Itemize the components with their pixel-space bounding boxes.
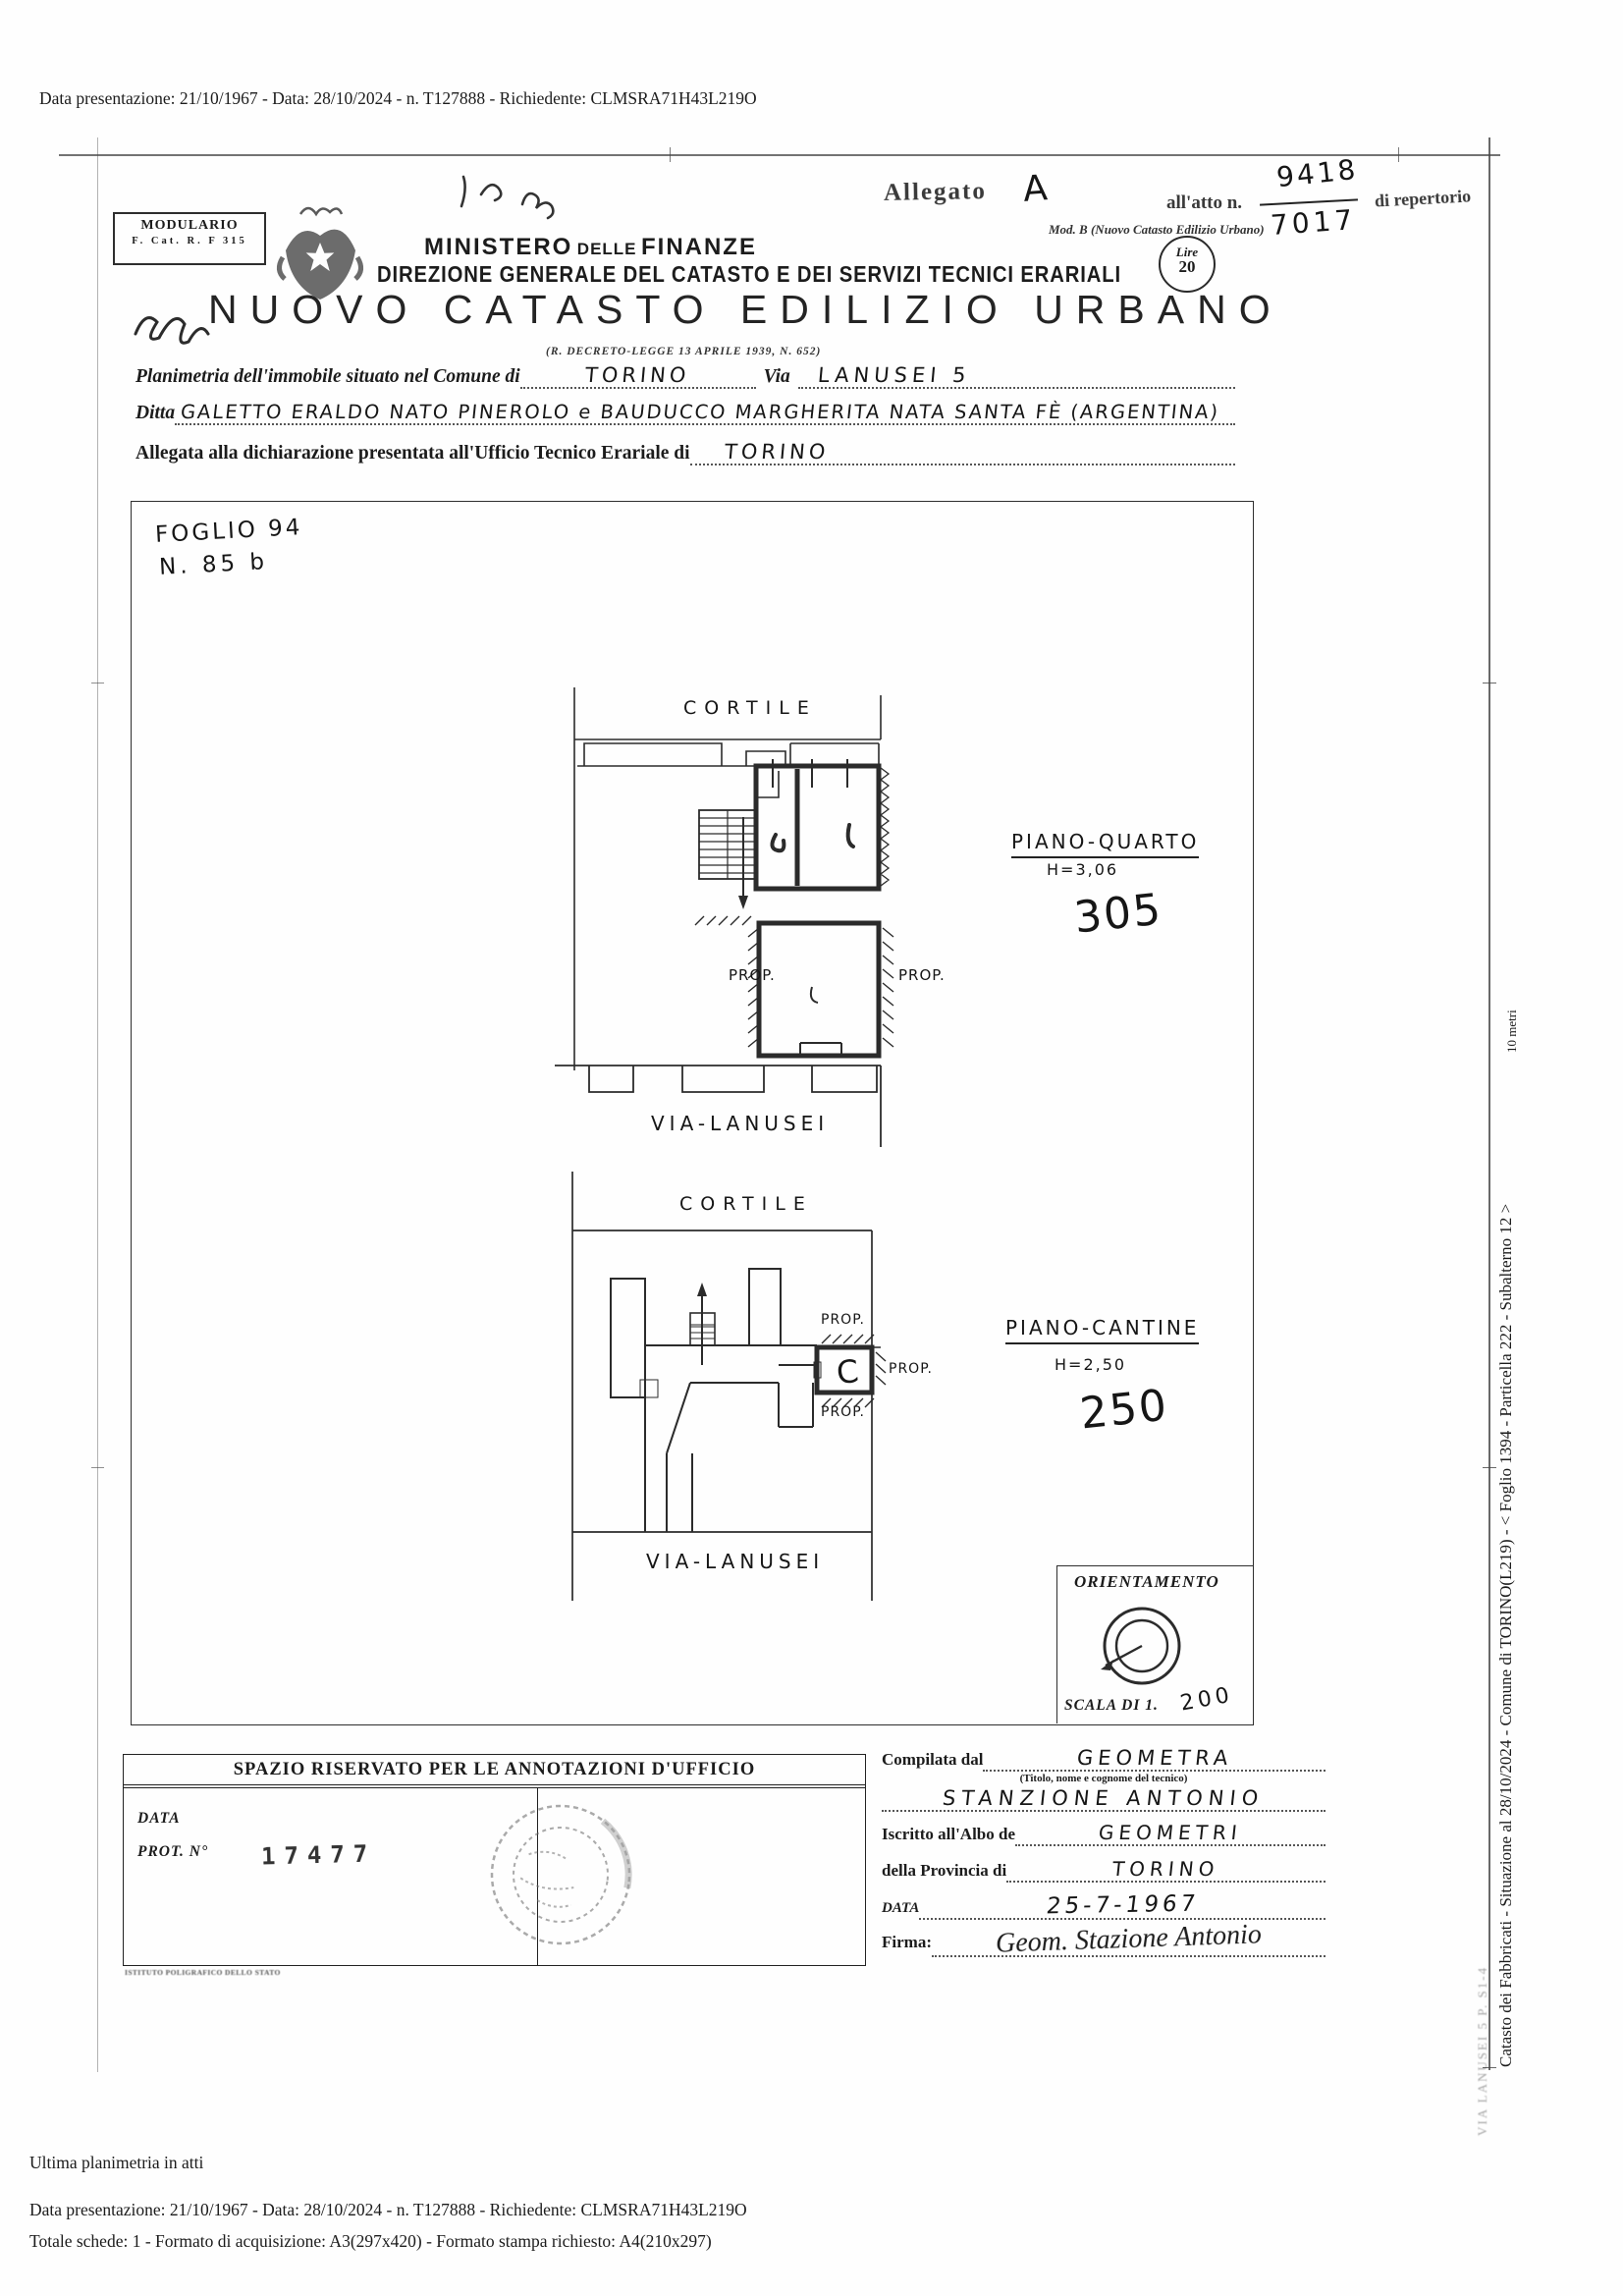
ditta-field: GALETTO ERALDO NATO PINEROLO e BAUDUCCO … <box>175 401 1235 425</box>
frame-left-line <box>97 137 98 2072</box>
titolo-note: (Titolo, nome e cognome del tecnico) <box>882 1773 1325 1784</box>
planimetria-row: Planimetria dell'immobile situato nel Co… <box>135 363 1235 389</box>
scalebar-meters-label: 10 metri <box>1504 1010 1520 1053</box>
cortile-label-2: CORTILE <box>679 1193 813 1215</box>
modulario-title: MODULARIO <box>115 218 264 234</box>
provincia-label: della Provincia di <box>882 1861 1006 1881</box>
comune-field: TORINO <box>520 363 756 389</box>
allegata-row: Allegata alla dichiarazione presentata a… <box>135 440 1235 465</box>
tick-top-2 <box>1398 147 1399 162</box>
frame-top-line <box>59 154 1500 156</box>
repertorio-stamp: di repertorio <box>1375 186 1472 211</box>
prop-left-label: PROP. <box>729 966 776 984</box>
modulario-code: F. Cat. R. F 315 <box>115 236 264 246</box>
cortile-label-1: CORTILE <box>683 697 817 719</box>
lire-20-seal: Lire 20 <box>1159 236 1216 293</box>
allegato-stamp: Allegato <box>884 178 987 207</box>
data-row: DATA 25-7-1967 <box>882 1892 1325 1920</box>
prot-number-stamp: 17477 <box>261 1839 377 1870</box>
decreto-subtitle: (R. DECRETO-LEGGE 13 APRILE 1939, N. 652… <box>546 346 821 357</box>
scanned-cadastral-document: Data presentazione: 21/10/1967 - Data: 2… <box>0 0 1623 2296</box>
prop-right-label: PROP. <box>898 966 946 984</box>
albo-value-handwritten: GEOMETRI <box>1098 1821 1243 1844</box>
firma-field: Geom. Stazione Antonio <box>932 1924 1325 1957</box>
round-office-stamp <box>437 1776 684 1974</box>
ufficio-field: TORINO <box>690 440 1235 465</box>
annotations-prot-label: PROT. N° <box>137 1843 208 1861</box>
orientamento-label: ORIENTAMENTO <box>1074 1572 1219 1592</box>
via-value-handwritten: LANUSEI 5 <box>817 363 972 387</box>
prop-top-label-2: PROP. <box>821 1312 865 1328</box>
firma-row: Firma: Geom. Stazione Antonio <box>882 1924 1325 1957</box>
handwritten-scribble-title <box>128 293 221 347</box>
tick-top-1 <box>670 147 671 162</box>
footer-line-1: Ultima planimetria in atti <box>29 2153 203 2173</box>
footer-line-2: Data presentazione: 21/10/1967 - Data: 2… <box>29 2200 747 2220</box>
side-caption-faint: VIA LANUSEI 5 P. S1-4 <box>1475 1966 1490 2136</box>
tick-left-2 <box>91 1467 104 1468</box>
ministero-word: MINISTERO <box>424 234 572 260</box>
qualifica-field: GEOMETRA <box>983 1746 1325 1772</box>
tecnico-nome-handwritten: STANZIONE ANTONIO <box>942 1786 1266 1810</box>
compilata-label: Compilata dal <box>882 1750 983 1770</box>
albo-field: GEOMETRI <box>1015 1821 1325 1846</box>
ministero-line: MINISTERO DELLE FINANZE <box>424 234 757 261</box>
compile-data-handwritten: 25-7-1967 <box>1045 1891 1201 1920</box>
floorplan-piano-cantine <box>555 1164 1006 1615</box>
allegata-label: Allegata alla dichiarazione presentata a… <box>135 443 690 465</box>
handwritten-scribble-top <box>450 165 597 224</box>
firma-signature: Geom. Stazione Antonio <box>996 1919 1263 1959</box>
allegato-letter-handwritten: A <box>1022 168 1049 210</box>
comune-value-handwritten: TORINO <box>584 363 690 387</box>
ditta-row: Ditta GALETTO ERALDO NATO PINEROLO e BAU… <box>135 401 1235 425</box>
ufficio-value-handwritten: TORINO <box>723 440 829 464</box>
provincia-row: della Provincia di TORINO <box>882 1857 1325 1883</box>
scalebar-tick-1 <box>1483 683 1496 683</box>
planimetria-label: Planimetria dell'immobile situato nel Co… <box>135 366 520 388</box>
lire-value: 20 <box>1161 258 1214 275</box>
via-field: LANUSEI 5 <box>798 363 1235 389</box>
piano-quarto-altezza: H=3,06 <box>1047 860 1118 879</box>
piano-cantine-numero: 250 <box>1078 1380 1171 1439</box>
firma-label: Firma: <box>882 1933 932 1952</box>
side-caption: Catasto dei Fabbricati - Situazione al 2… <box>1496 1204 1516 2067</box>
albo-row: Iscritto all'Albo de GEOMETRI <box>882 1821 1325 1846</box>
provincia-value-handwritten: TORINO <box>1111 1857 1220 1881</box>
cantina-letter: C <box>835 1352 860 1392</box>
piano-cantine-altezza: H=2,50 <box>1055 1355 1126 1374</box>
compile-area: Compilata dal GEOMETRA (Titolo, nome e c… <box>882 1746 1325 1957</box>
via-lanusei-label-2: VIA-LANUSEI <box>646 1550 824 1573</box>
compile-data-field: 25-7-1967 <box>919 1892 1325 1920</box>
direzione-line: DIREZIONE GENERALE DEL CATASTO E DEI SER… <box>377 261 1121 288</box>
tick-left-1 <box>91 683 104 683</box>
ditta-label: Ditta <box>135 403 175 424</box>
scalebar-tick-2 <box>1483 1467 1496 1468</box>
finanze-word: FINANZE <box>641 234 757 260</box>
printer-imprint: ISTITUTO POLIGRAFICO DELLO STATO <box>125 1968 281 1977</box>
qualifica-handwritten: GEOMETRA <box>1075 1746 1233 1770</box>
scalebar-line <box>1488 137 1490 2070</box>
via-lanusei-label-1: VIA-LANUSEI <box>651 1112 829 1135</box>
delle-word: DELLE <box>577 240 637 258</box>
albo-label: Iscritto all'Albo de <box>882 1825 1015 1844</box>
top-meta-line: Data presentazione: 21/10/1967 - Data: 2… <box>39 88 757 109</box>
footer-line-3: Totale schede: 1 - Formato di acquisizio… <box>29 2231 712 2252</box>
atto-denominator-handwritten: 7017 <box>1270 203 1357 242</box>
floorplan-piano-quarto <box>555 678 1006 1154</box>
piano-cantine-title: PIANO-CANTINE <box>1005 1316 1199 1344</box>
atto-number-handwritten: 9418 <box>1275 153 1360 194</box>
prop-bottom-label-2: PROP. <box>821 1404 865 1420</box>
compile-data-label: DATA <box>882 1900 919 1917</box>
compass-icon <box>1080 1595 1208 1698</box>
scala-label: SCALA DI 1. <box>1064 1697 1159 1715</box>
annotations-box: SPAZIO RISERVATO PER LE ANNOTAZIONI D'UF… <box>123 1754 866 1966</box>
provincia-field: TORINO <box>1006 1857 1325 1883</box>
atto-stamp: all'atto n. <box>1166 192 1242 214</box>
ditta-value-handwritten: GALETTO ERALDO NATO PINEROLO e BAUDUCCO … <box>180 401 1221 423</box>
document-title: NUOVO CATASTO EDILIZIO URBANO <box>208 287 1283 333</box>
piano-quarto-numero: 305 <box>1072 884 1165 943</box>
modulario-box: MODULARIO F. Cat. R. F 315 <box>113 212 266 265</box>
nome-field: STANZIONE ANTONIO <box>882 1786 1325 1812</box>
via-label: Via <box>756 366 798 388</box>
piano-quarto-title: PIANO-QUARTO <box>1011 830 1199 858</box>
compilata-row: Compilata dal GEOMETRA <box>882 1746 1325 1772</box>
annotations-data-label: DATA <box>137 1810 181 1828</box>
mod-b-label: Mod. B (Nuovo Catasto Edilizio Urbano) <box>1049 222 1265 238</box>
prop-right-label-2: PROP. <box>889 1361 933 1377</box>
